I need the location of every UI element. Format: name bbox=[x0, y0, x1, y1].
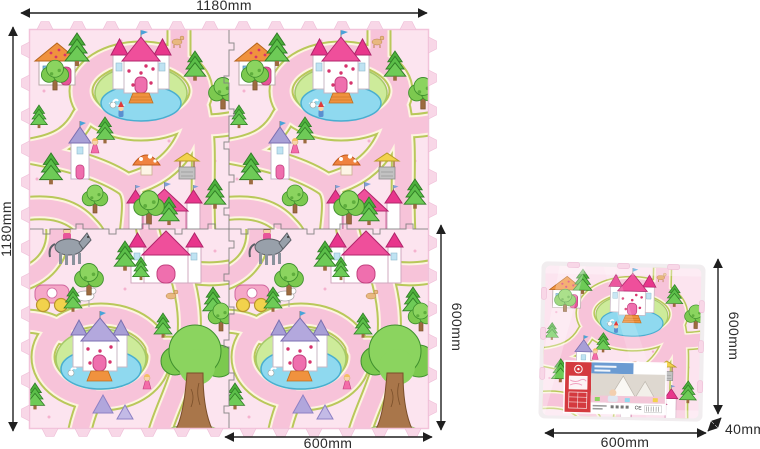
label-header-band bbox=[591, 362, 633, 374]
ce-mark: CE bbox=[635, 405, 643, 411]
tile-height-label: 600mm bbox=[449, 303, 465, 352]
label-mat-thumbnail bbox=[569, 376, 587, 389]
barcode bbox=[645, 405, 662, 412]
tile-width-label: 600mm bbox=[304, 435, 353, 449]
packaged-mat-photo: CE bbox=[532, 261, 708, 427]
diagram-svg: 1180mm 1180mm 600mm 600mm bbox=[0, 0, 760, 449]
package-thickness-dimension-line bbox=[708, 418, 721, 431]
product-label: CE bbox=[563, 360, 667, 415]
package-thickness-label: 40mm bbox=[725, 421, 760, 437]
play-mat-illustration bbox=[22, 22, 438, 437]
package-width-label: 600mm bbox=[601, 434, 650, 449]
mat-height-label: 1180mm bbox=[0, 201, 14, 257]
mat-width-label: 1180mm bbox=[196, 0, 252, 13]
product-dimension-diagram: 1180mm 1180mm 600mm 600mm bbox=[0, 0, 760, 449]
package-height-label: 600mm bbox=[726, 312, 742, 361]
